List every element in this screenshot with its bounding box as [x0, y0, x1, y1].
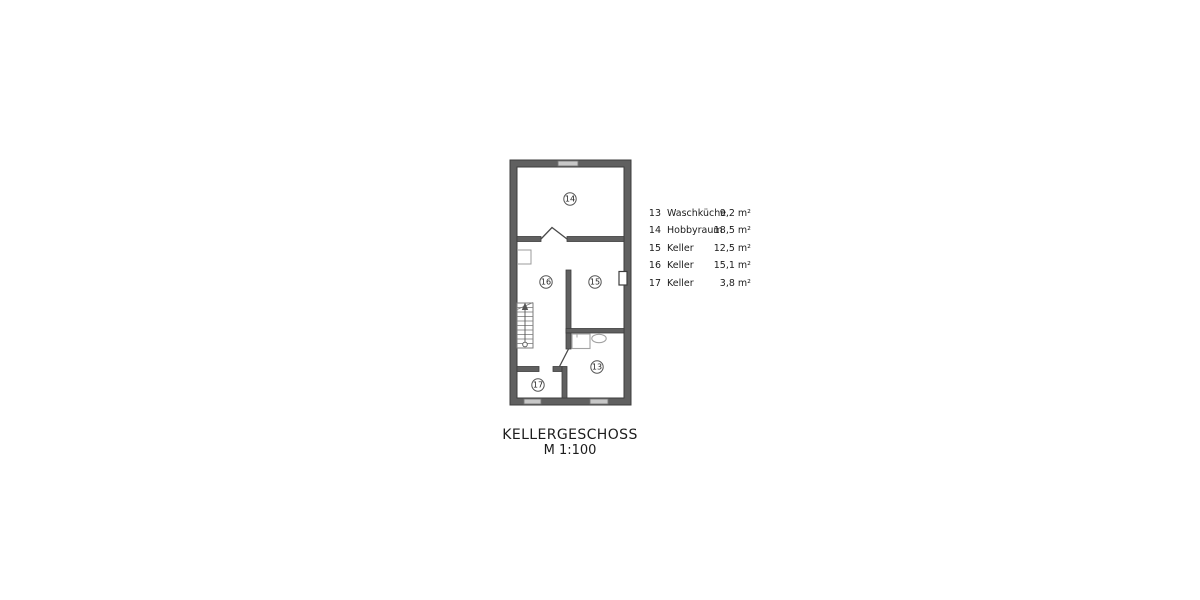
room-number: 17	[533, 381, 543, 390]
room-area: 3,8 m²	[720, 275, 751, 292]
room-number: 16	[648, 257, 661, 274]
room-label-17: 17	[532, 379, 544, 391]
staircase-icon	[517, 303, 533, 349]
room-area: 12,5 m²	[714, 240, 751, 257]
window-icon	[558, 161, 578, 166]
sink-unit-icon	[572, 334, 590, 349]
room-area: 15,1 m²	[714, 257, 751, 274]
page: 14 16 15 13 17	[0, 0, 1200, 600]
room-name: Keller	[667, 257, 694, 274]
wall-recess-icon	[619, 272, 627, 286]
room-label-15: 15	[589, 276, 601, 288]
room-number: 13	[592, 363, 602, 372]
basin-icon	[592, 334, 606, 342]
legend-row: 16 Keller 15,1 m²	[648, 257, 751, 274]
plan-title-block: KELLERGESCHOSS M 1:100	[470, 427, 670, 458]
room-number: 14	[565, 195, 575, 204]
room-number: 17	[648, 275, 661, 292]
wall-segment	[562, 367, 567, 399]
window-icon	[524, 399, 541, 404]
room-name: Keller	[667, 240, 694, 257]
floor-plan: 14 16 15 13 17	[510, 160, 631, 405]
legend-row: 14 Hobbyraum 18,5 m²	[648, 222, 751, 239]
room-label-14: 14	[564, 193, 576, 205]
page-title: KELLERGESCHOSS	[470, 427, 670, 443]
room-label-13: 13	[591, 361, 603, 373]
shaft-icon	[518, 250, 532, 264]
room-number: 14	[648, 222, 661, 239]
wall-segment	[553, 367, 562, 372]
room-label-16: 16	[540, 276, 552, 288]
room-legend: 13 Waschküche 9,2 m² 14 Hobbyraum 18,5 m…	[648, 205, 751, 292]
room-number: 15	[590, 278, 600, 287]
room-name: Keller	[667, 275, 694, 292]
room-area: 18,5 m²	[714, 222, 751, 239]
window-icon	[590, 399, 608, 404]
wall-segment	[566, 333, 571, 349]
wall-segment	[567, 237, 624, 242]
walk-line-start	[523, 342, 528, 347]
floor-plan-canvas: 14 16 15 13 17	[0, 0, 1200, 600]
wall-segment	[517, 367, 539, 372]
wall-segment	[566, 270, 571, 333]
room-number: 15	[648, 240, 661, 257]
legend-row: 13 Waschküche 9,2 m²	[648, 205, 751, 222]
room-name: Waschküche	[667, 205, 726, 222]
wall-segment	[517, 237, 541, 242]
legend-row: 17 Keller 3,8 m²	[648, 275, 751, 292]
room-number: 13	[648, 205, 661, 222]
plan-scale: M 1:100	[470, 443, 670, 458]
room-area: 9,2 m²	[720, 205, 751, 222]
legend-row: 15 Keller 12,5 m²	[648, 240, 751, 257]
wall-segment	[566, 329, 624, 334]
room-number: 16	[541, 278, 551, 287]
